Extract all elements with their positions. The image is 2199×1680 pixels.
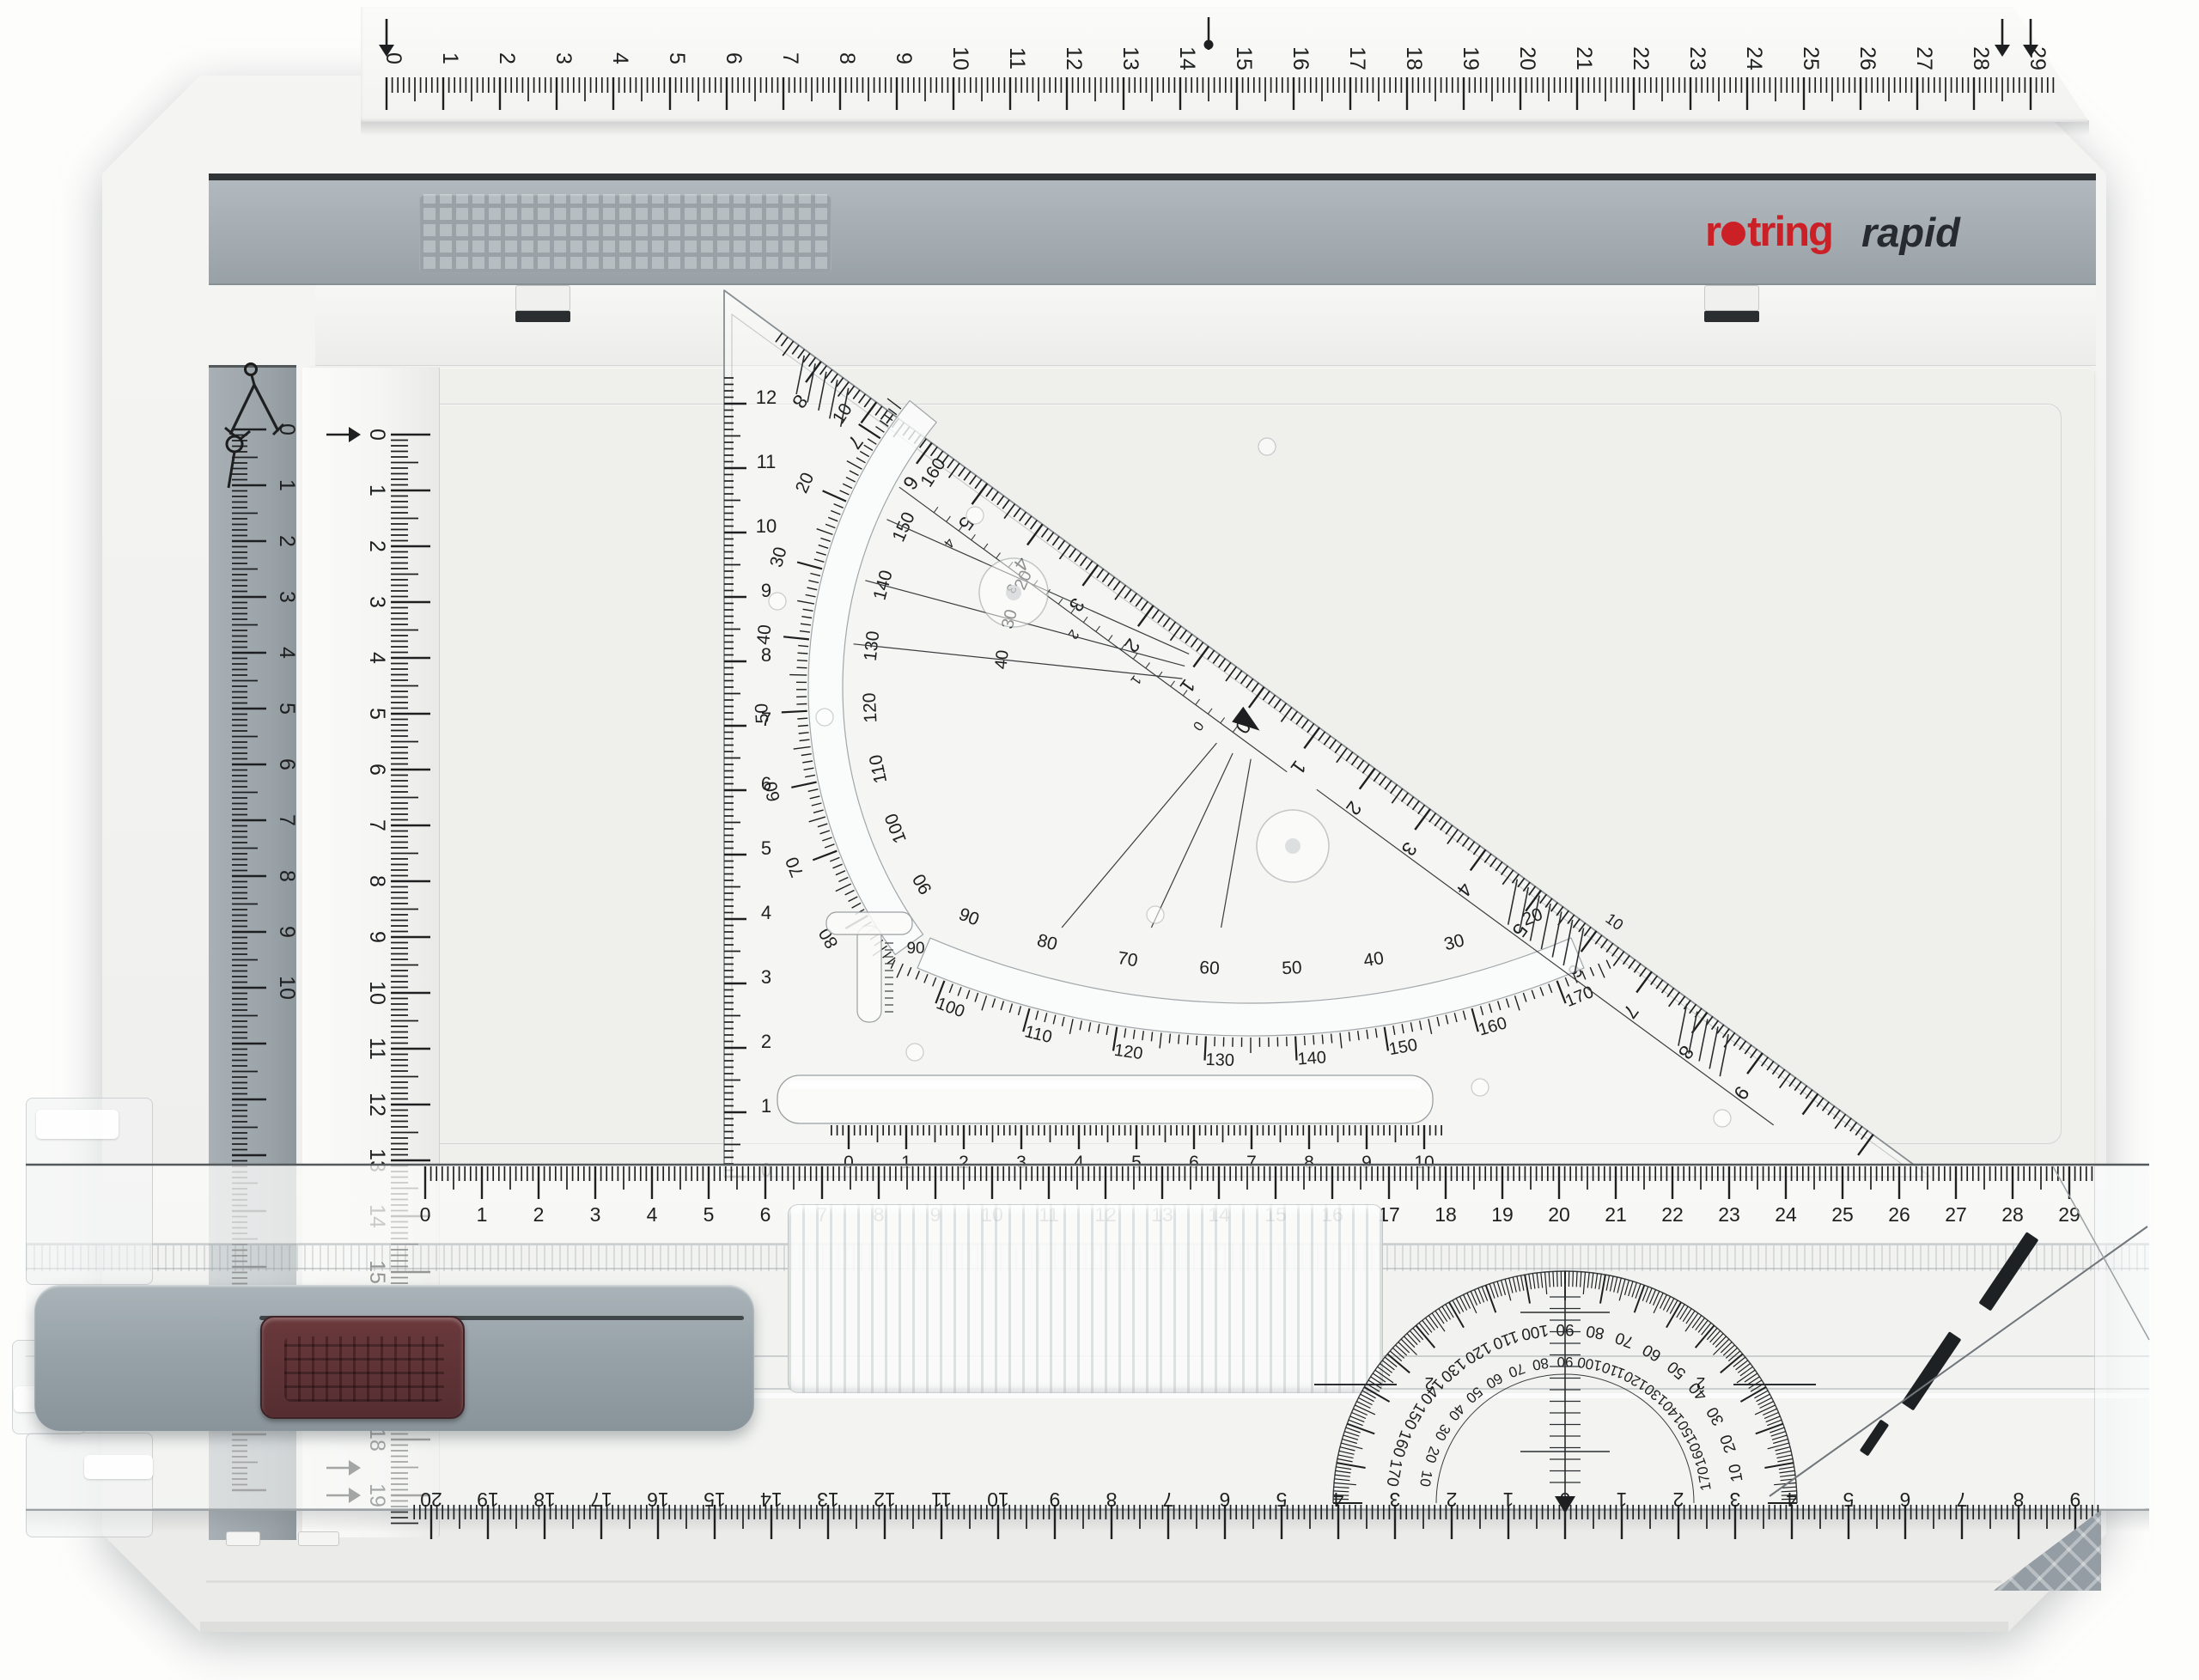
- clamp-highlight-tab: [36, 1110, 119, 1139]
- rail-grip[interactable]: [788, 1204, 1383, 1393]
- bottom-tab: [298, 1531, 339, 1546]
- bottom-tab: [226, 1531, 260, 1546]
- drawing-board-photo: rtring rapid 012345678910111213141516171…: [0, 0, 2199, 1680]
- rail-right-endcap: [2094, 1165, 2149, 1510]
- rail-shadow: [26, 1510, 2149, 1532]
- button-texture: [284, 1336, 444, 1402]
- release-button[interactable]: [260, 1316, 465, 1419]
- clamp-highlight-tab: [84, 1455, 153, 1479]
- rail-left-clamp-lower[interactable]: [26, 1433, 153, 1537]
- clamp-handle[interactable]: [34, 1285, 754, 1431]
